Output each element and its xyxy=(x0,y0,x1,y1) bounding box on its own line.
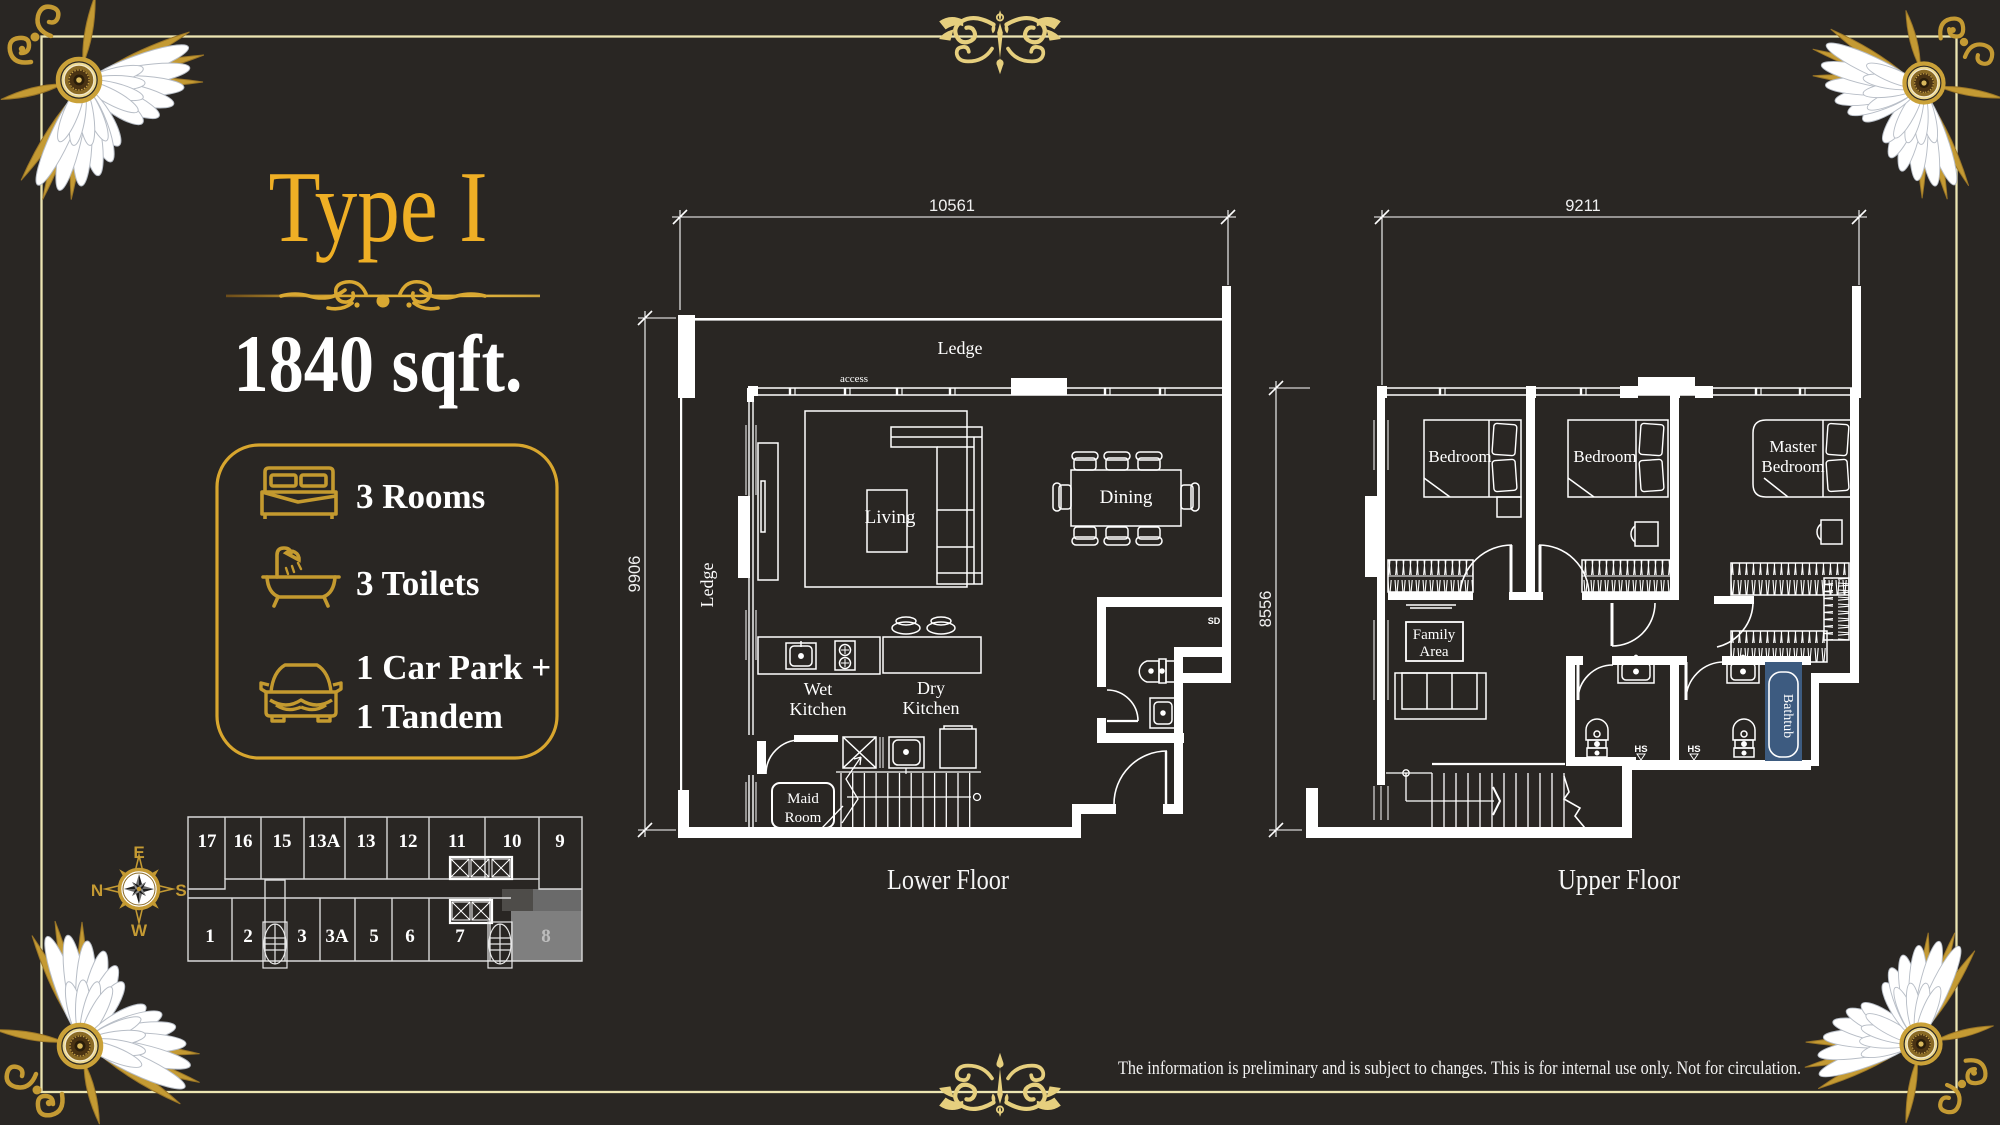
svg-text:13: 13 xyxy=(357,831,376,852)
svg-text:13A: 13A xyxy=(308,831,341,852)
svg-text:8556: 8556 xyxy=(1257,591,1275,628)
svg-text:Bedroom: Bedroom xyxy=(1573,447,1636,466)
svg-text:7: 7 xyxy=(455,926,465,947)
svg-text:HS: HS xyxy=(1687,744,1700,755)
svg-text:Maid: Maid xyxy=(787,791,819,807)
svg-text:Kitchen: Kitchen xyxy=(790,699,847,719)
svg-text:The information is preliminary: The information is preliminary and is su… xyxy=(1118,1059,1801,1079)
svg-text:Family: Family xyxy=(1413,627,1456,643)
svg-text:Bedroom: Bedroom xyxy=(1761,457,1824,476)
svg-text:5: 5 xyxy=(369,926,379,947)
svg-text:Ledge: Ledge xyxy=(938,338,983,358)
svg-text:Master: Master xyxy=(1769,437,1817,456)
svg-text:3: 3 xyxy=(297,926,307,947)
svg-text:access: access xyxy=(840,373,868,385)
svg-text:9906: 9906 xyxy=(626,556,644,593)
svg-text:1 Tandem: 1 Tandem xyxy=(356,697,503,736)
svg-text:1840 sqft.: 1840 sqft. xyxy=(234,318,523,409)
svg-text:3A: 3A xyxy=(325,926,349,947)
svg-text:6: 6 xyxy=(405,926,415,947)
svg-text:1 Car Park +: 1 Car Park + xyxy=(356,648,551,687)
svg-text:8: 8 xyxy=(541,926,551,947)
svg-text:SD: SD xyxy=(1208,616,1221,626)
svg-text:3 Toilets: 3 Toilets xyxy=(356,564,480,603)
svg-text:1: 1 xyxy=(205,926,215,947)
svg-text:11: 11 xyxy=(448,831,466,852)
svg-text:Ledge: Ledge xyxy=(697,563,717,608)
svg-text:W: W xyxy=(131,921,148,940)
svg-text:9211: 9211 xyxy=(1565,197,1600,215)
svg-text:10: 10 xyxy=(503,831,522,852)
svg-text:Room: Room xyxy=(785,810,822,826)
svg-text:Dining: Dining xyxy=(1100,487,1153,508)
svg-text:HS: HS xyxy=(1634,744,1647,755)
svg-text:10561: 10561 xyxy=(929,197,975,215)
svg-text:Upper Floor: Upper Floor xyxy=(1558,865,1681,896)
svg-text:Wet: Wet xyxy=(804,679,833,699)
svg-text:16: 16 xyxy=(234,831,253,852)
svg-text:Living: Living xyxy=(865,507,916,528)
svg-text:17: 17 xyxy=(198,831,218,852)
svg-text:Dry: Dry xyxy=(917,678,945,698)
svg-text:Bedroom: Bedroom xyxy=(1428,447,1491,466)
svg-text:E: E xyxy=(133,843,144,862)
svg-text:15: 15 xyxy=(273,831,292,852)
svg-text:S: S xyxy=(175,881,186,900)
svg-text:Kitchen: Kitchen xyxy=(903,698,960,718)
svg-text:2: 2 xyxy=(243,926,253,947)
svg-text:3 Rooms: 3 Rooms xyxy=(356,477,485,516)
svg-text:9: 9 xyxy=(555,831,565,852)
svg-text:12: 12 xyxy=(399,831,418,852)
svg-text:Lower Floor: Lower Floor xyxy=(887,865,1010,896)
svg-text:N: N xyxy=(91,881,103,900)
svg-text:Bathtub: Bathtub xyxy=(1780,694,1795,738)
svg-text:Type I: Type I xyxy=(269,151,488,264)
svg-text:Area: Area xyxy=(1419,644,1448,660)
